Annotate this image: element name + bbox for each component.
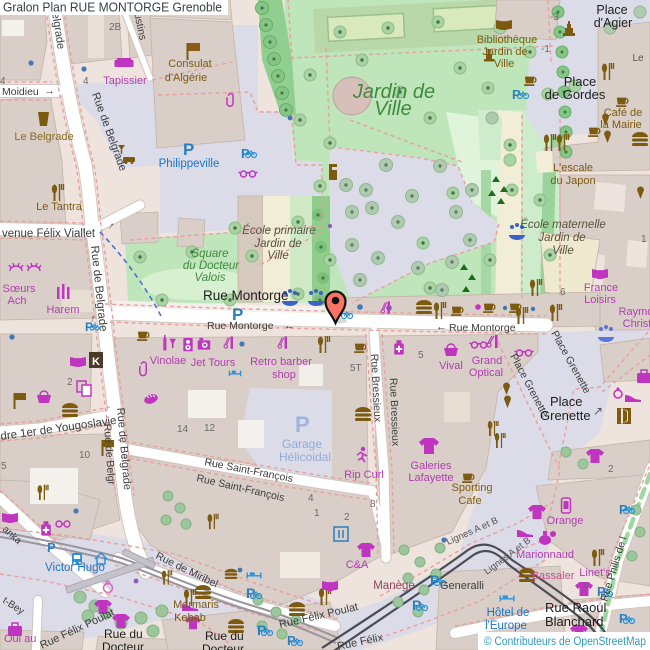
- svg-text:4: 4: [583, 581, 589, 592]
- svg-text:du Docteur: du Docteur: [183, 260, 240, 272]
- svg-text:Jardin de: Jardin de: [537, 232, 585, 244]
- svg-text:P: P: [47, 540, 56, 555]
- svg-text:Marionnaud: Marionnaud: [516, 549, 574, 561]
- svg-text:Moidieu: Moidieu: [2, 86, 39, 98]
- svg-text:Vinolae: Vinolae: [150, 355, 187, 367]
- svg-text:Lafayette: Lafayette: [408, 472, 453, 484]
- svg-text:Manège: Manège: [373, 580, 415, 592]
- svg-text:4: 4: [308, 493, 314, 504]
- svg-text:Retro barber: Retro barber: [250, 356, 312, 368]
- svg-text:8: 8: [370, 499, 376, 510]
- svg-text:de Gordes: de Gordes: [545, 87, 606, 102]
- svg-text:Bibliothèque: Bibliothèque: [477, 34, 538, 46]
- svg-text:Kebab: Kebab: [174, 612, 206, 624]
- svg-text:4: 4: [83, 76, 89, 87]
- svg-text:Place: Place: [550, 394, 583, 409]
- svg-text:Grenette: Grenette: [540, 408, 591, 423]
- svg-text:Ach: Ach: [8, 295, 27, 307]
- svg-text:Linet's: Linet's: [579, 567, 611, 579]
- svg-text:Gralon Plan RUE MONTORGE Greno: Gralon Plan RUE MONTORGE Grenoble: [3, 0, 222, 15]
- svg-text:Le Belgrade: Le Belgrade: [14, 131, 73, 143]
- svg-text:Rue Montorge: Rue Montorge: [449, 322, 516, 334]
- svg-text:Victor Hugo: Victor Hugo: [45, 562, 105, 574]
- svg-text:1: 1: [314, 508, 320, 519]
- svg-text:14: 14: [177, 424, 189, 435]
- svg-text:2: 2: [608, 464, 614, 475]
- svg-text:venue Félix Viallet: venue Félix Viallet: [2, 228, 96, 240]
- svg-text:l'Europe: l'Europe: [485, 620, 527, 632]
- svg-text:Docteur: Docteur: [102, 640, 144, 650]
- svg-text:Bassaler: Bassaler: [532, 570, 575, 582]
- svg-text:la Mairie: la Mairie: [600, 119, 642, 131]
- svg-text:Hôtel de: Hôtel de: [487, 607, 530, 619]
- svg-text:5: 5: [1, 461, 7, 472]
- svg-text:←: ←: [436, 321, 447, 333]
- svg-text:Orange: Orange: [547, 515, 584, 527]
- svg-text:École maternelle: École maternelle: [520, 218, 606, 231]
- svg-text:Ville: Ville: [267, 250, 289, 262]
- svg-text:Ville: Ville: [494, 58, 515, 70]
- svg-text:Philippeville: Philippeville: [159, 158, 220, 170]
- svg-text:© Contributeurs de OpenStreetM: © Contributeurs de OpenStreetMap: [484, 636, 646, 648]
- svg-text:Hélicoidal: Hélicoidal: [279, 450, 331, 464]
- svg-text:K: K: [92, 356, 100, 368]
- svg-text:Sporting: Sporting: [452, 482, 493, 494]
- svg-text:Jet Tours: Jet Tours: [191, 357, 236, 369]
- svg-text:Square: Square: [191, 248, 228, 260]
- svg-text:Cafe: Cafe: [458, 495, 481, 507]
- svg-text:Loisirs: Loisirs: [584, 294, 616, 306]
- svg-text:Le: Le: [632, 53, 644, 64]
- svg-text:4: 4: [0, 76, 6, 87]
- svg-text:Raymo: Raymo: [619, 306, 650, 318]
- svg-text:P: P: [183, 140, 194, 159]
- svg-text:Rue Raoul: Rue Raoul: [545, 600, 607, 615]
- svg-text:P: P: [512, 87, 521, 102]
- svg-text:-3: -3: [550, 12, 559, 23]
- svg-text:L'escale: L'escale: [553, 162, 593, 174]
- svg-text:P: P: [295, 412, 310, 437]
- svg-text:d'Algérie: d'Algérie: [165, 72, 207, 84]
- svg-text:Rue du: Rue du: [205, 629, 244, 643]
- svg-text:du Japon: du Japon: [550, 175, 595, 187]
- svg-text:Rue Montorge: Rue Montorge: [207, 320, 274, 332]
- svg-text:Rue du: Rue du: [104, 627, 143, 641]
- svg-text:-1: -1: [541, 44, 550, 55]
- svg-text:Optical: Optical: [469, 367, 503, 379]
- svg-text:C&A: C&A: [346, 559, 369, 571]
- svg-text:Ville: Ville: [374, 98, 411, 120]
- svg-text:shop: shop: [272, 369, 296, 381]
- svg-text:5T: 5T: [350, 363, 362, 374]
- svg-text:Grand: Grand: [472, 355, 503, 367]
- svg-text:Le Tantra: Le Tantra: [36, 201, 83, 213]
- svg-text:←: ←: [284, 320, 295, 332]
- svg-text:Generalli: Generalli: [440, 580, 484, 592]
- svg-text:Blanchard: Blanchard: [545, 614, 604, 629]
- svg-text:Galeries: Galeries: [411, 460, 452, 472]
- svg-text:Rue Montorge: Rue Montorge: [203, 288, 289, 303]
- svg-text:2: 2: [67, 377, 73, 388]
- svg-text:France: France: [584, 282, 618, 294]
- svg-text:1: 1: [641, 234, 647, 245]
- svg-text:Jardin de: Jardin de: [253, 238, 301, 250]
- svg-text:↗: ↗: [593, 404, 603, 418]
- svg-text:6: 6: [560, 287, 566, 298]
- svg-text:École primaire: École primaire: [242, 224, 316, 237]
- svg-text:Docteur: Docteur: [202, 642, 244, 650]
- svg-text:10: 10: [79, 450, 91, 461]
- svg-text:Marmaris: Marmaris: [173, 599, 219, 611]
- svg-text:→: →: [44, 85, 55, 97]
- svg-text:Vival: Vival: [439, 360, 463, 372]
- svg-text:2: 2: [344, 512, 350, 523]
- svg-text:Jardin de: Jardin de: [482, 46, 527, 58]
- svg-text:Consulat: Consulat: [168, 58, 211, 70]
- svg-text:Christ: Christ: [623, 318, 650, 330]
- svg-text:Ville: Ville: [552, 245, 574, 257]
- svg-text:d'Agier: d'Agier: [594, 16, 633, 30]
- svg-text:Tapissier: Tapissier: [103, 75, 147, 87]
- svg-text:12: 12: [204, 423, 216, 434]
- svg-text:Place: Place: [596, 3, 627, 17]
- svg-text:Oui au: Oui au: [4, 633, 36, 645]
- svg-text:↑: ↑: [374, 356, 380, 368]
- svg-text:Harem: Harem: [46, 304, 79, 316]
- svg-text:Café de: Café de: [604, 107, 643, 119]
- svg-text:Valois: Valois: [195, 272, 226, 284]
- svg-text:Sœurs: Sœurs: [3, 283, 37, 295]
- svg-text:2B: 2B: [109, 22, 122, 33]
- svg-text:Garage: Garage: [282, 437, 322, 451]
- svg-text:Rip Curl: Rip Curl: [344, 469, 384, 481]
- svg-text:5: 5: [418, 350, 424, 361]
- svg-text:Rue Bressieux: Rue Bressieux: [387, 378, 401, 447]
